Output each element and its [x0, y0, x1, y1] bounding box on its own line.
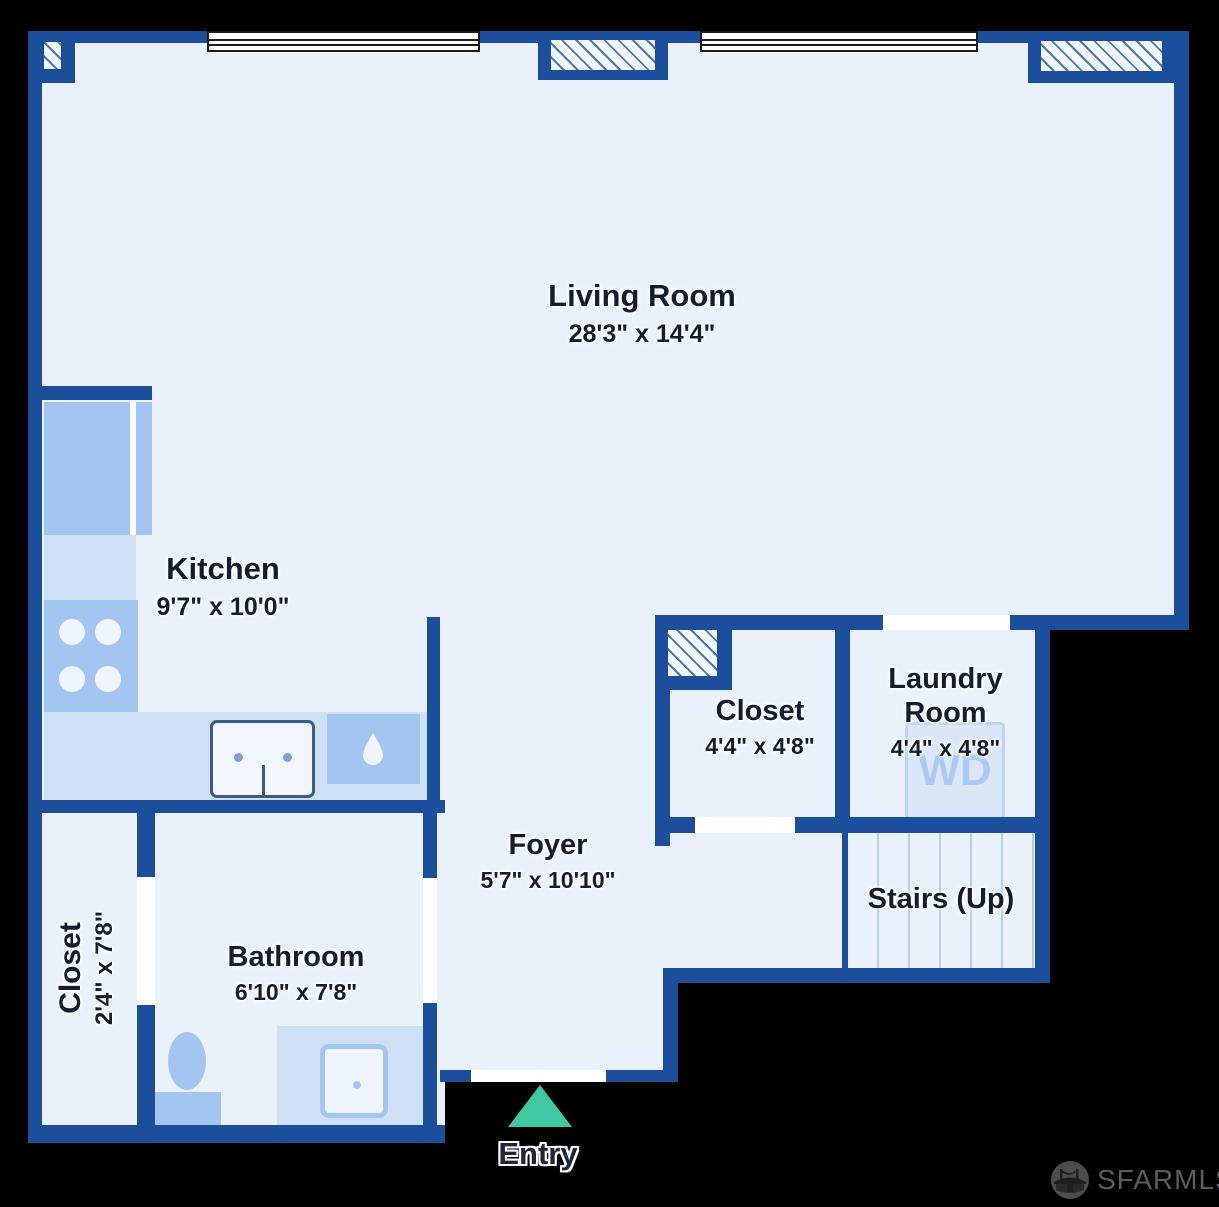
wall-closet-duct-r	[717, 615, 732, 690]
sfarmls-logo: SFARMLS	[1050, 1160, 1219, 1200]
bathroom-label: Bathroom 6'10" x 7'8"	[176, 940, 416, 1006]
room-name: Bathroom	[228, 940, 365, 974]
floorplan-canvas: WD Living Room 28'3" x 14'4" Kitchen 9'7…	[0, 0, 1219, 1207]
left-closet-label: Closet 2'4" x 7'8"	[50, 808, 122, 1128]
wall-foyer-right	[663, 968, 678, 1082]
hall-closet-label: Closet 4'4" x 4'8"	[660, 694, 860, 760]
bridge-emblem-icon	[1050, 1160, 1090, 1200]
brand-text: SFARMLS	[1097, 1164, 1219, 1196]
room-dims: 5'7" x 10'10"	[480, 867, 615, 894]
room-dims: 28'3" x 14'4"	[569, 320, 716, 349]
burner-icon	[95, 666, 121, 692]
burner-icon	[59, 619, 85, 645]
room-dims: 4'4" x 4'8"	[891, 735, 1001, 762]
toilet-icon	[168, 1032, 206, 1090]
laundry-door-opening	[883, 615, 1010, 630]
fireplace-left-hatch-icon	[551, 40, 655, 70]
fridge-icon	[44, 402, 132, 535]
shower-pan	[320, 1044, 388, 1118]
counter-strip	[136, 402, 152, 535]
laundry-room-label: Laundry Room 4'4" x 4'8"	[858, 662, 1033, 762]
kitchen-sink-icon	[210, 720, 315, 798]
kitchen-label: Kitchen 9'7" x 10'0"	[103, 551, 343, 622]
wall-kitchen-stub	[28, 386, 152, 400]
window-icon	[700, 31, 978, 52]
living-room-label: Living Room 28'3" x 14'4"	[442, 278, 842, 349]
room-name: Closet	[716, 694, 805, 728]
burner-icon	[95, 619, 121, 645]
room-name: Stairs (Up)	[868, 882, 1015, 916]
room-dims: 2'4" x 7'8"	[91, 911, 119, 1025]
toilet-tank	[155, 1092, 221, 1125]
room-name: Laundry Room	[858, 662, 1033, 730]
wall-foyer-kitchen	[427, 617, 440, 800]
entry-door-opening	[471, 1070, 606, 1082]
burner-icon	[59, 666, 85, 692]
foyer-label: Foyer 5'7" x 10'10"	[448, 828, 648, 894]
corner-hatch-icon	[44, 42, 61, 69]
wall-left	[28, 31, 42, 1143]
floor-hallway	[678, 833, 848, 968]
closet-duct-hatch-icon	[668, 630, 717, 676]
entry-label: Entry	[458, 1136, 618, 1172]
bathroom-door-opening	[423, 878, 437, 1003]
stairs-label: Stairs (Up)	[831, 882, 1051, 916]
window-icon	[207, 31, 480, 52]
room-dims: 4'4" x 4'8"	[705, 733, 815, 760]
room-dims: 9'7" x 10'0"	[157, 593, 290, 622]
wall-laundry-right	[1035, 630, 1050, 983]
left-closet-door-opening	[137, 877, 155, 1005]
room-name: Kitchen	[166, 551, 280, 588]
room-dims: 6'10" x 7'8"	[235, 979, 357, 1006]
entry-arrow-icon	[508, 1085, 572, 1127]
room-name: Foyer	[509, 828, 588, 862]
wall-stairs-bottom	[663, 968, 1050, 983]
room-name: Closet	[53, 922, 88, 1014]
hall-closet-door-opening	[695, 817, 795, 833]
room-name: Living Room	[548, 278, 736, 315]
fireplace-right-hatch-icon	[1041, 41, 1162, 71]
water-drop-icon	[362, 733, 384, 765]
wall-right	[1174, 31, 1189, 630]
